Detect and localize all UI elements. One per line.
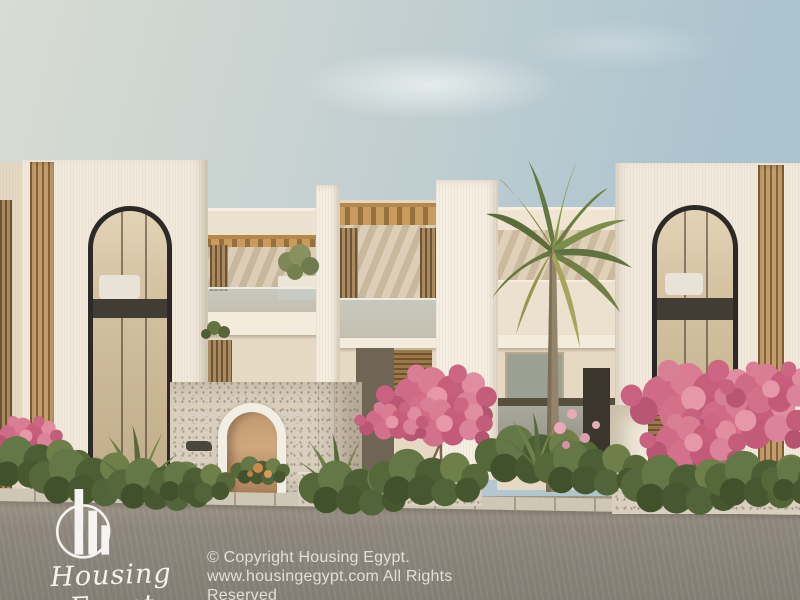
window-mullion: [121, 211, 123, 479]
copyright-line-1: © Copyright Housing Egypt.: [207, 548, 527, 567]
window-interior-furniture: [99, 275, 140, 299]
floor-slab: [497, 335, 618, 348]
louver-shutter-door: [394, 350, 432, 430]
balcony-glass-railing: [338, 298, 438, 340]
left-arch-window: [88, 206, 172, 479]
brand-watermark: Housing Egypt: [14, 480, 214, 598]
right-tower-louver-strip: [758, 165, 784, 480]
window-interior-furniture: [665, 273, 703, 295]
dark-recess-doorway: [583, 368, 610, 488]
brand-name: Housing Egypt: [13, 557, 210, 600]
balcony-louver-screen: [210, 245, 228, 291]
window-slab-band: [657, 298, 733, 320]
glass-door: [505, 352, 564, 400]
cloud: [520, 20, 720, 70]
facade-pillar: [436, 180, 498, 480]
balcony-louver-screen: [340, 228, 358, 298]
copyright-line-2: www.housingegypt.com All Rights Reserved: [207, 567, 527, 600]
balcony-parapet: [497, 280, 618, 337]
upper-wall: [497, 230, 618, 280]
cloud: [300, 50, 560, 120]
wood-panel-door: [648, 412, 668, 466]
window-mullion: [145, 211, 147, 479]
floor-slab: [338, 338, 438, 348]
left-tower-louver-strip: [30, 162, 54, 492]
window-slab-band: [93, 299, 167, 318]
stone-planter-right: [612, 478, 800, 514]
entrance-arch-opening: [227, 412, 277, 497]
entrance-arch-door: [218, 403, 286, 497]
architectural-render-image: Housing Egypt © Copyright Housing Egypt.…: [0, 0, 800, 600]
far-left-louver: [0, 200, 12, 490]
balcony-louver-screen: [420, 228, 436, 298]
slab-line: [626, 466, 668, 470]
copyright-watermark: © Copyright Housing Egypt. www.housingeg…: [207, 548, 527, 600]
stone-planter-center: [298, 472, 482, 506]
entrance-sign-plaque: [186, 441, 212, 451]
